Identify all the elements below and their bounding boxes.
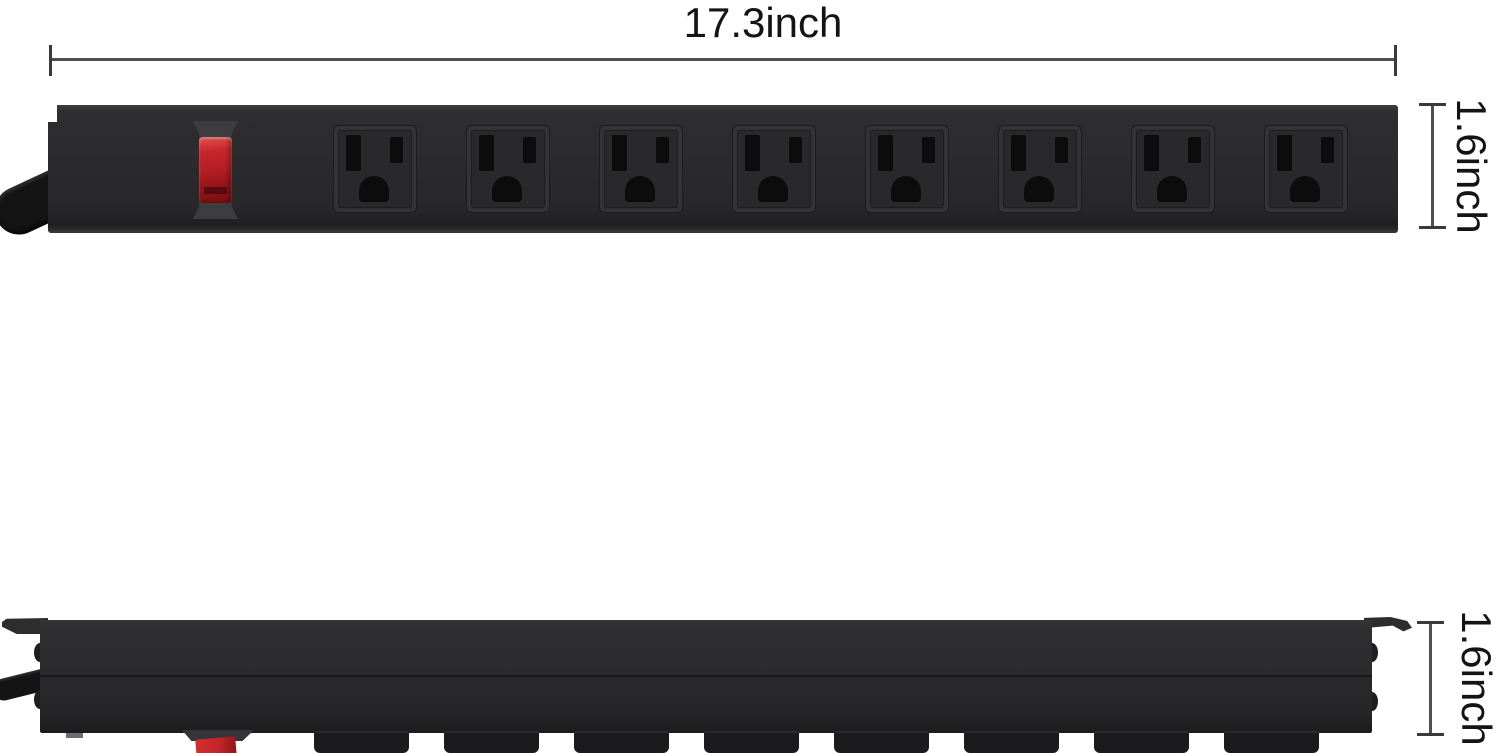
outlet-hot-slot <box>656 137 669 163</box>
side-view-height-tick-bottom <box>1417 733 1444 736</box>
outlet-neutral-slot <box>612 135 627 171</box>
side-view-height-label: 1.6inch <box>1455 610 1497 745</box>
top-view-height-label: 1.6inch <box>1450 98 1492 233</box>
housing-seam <box>40 675 1372 677</box>
outlet-ground-slot <box>758 176 788 202</box>
outlet-neutral-slot <box>1277 135 1292 171</box>
outlet-hot-slot <box>1188 137 1201 163</box>
outlet-module-underside <box>1094 731 1189 753</box>
side-view-height-tick-top <box>1417 621 1444 624</box>
outlet-neutral-slot <box>878 135 893 171</box>
outlet-neutral-slot <box>346 135 361 171</box>
power-outlet-icon <box>467 126 549 212</box>
top-view-height-line <box>1431 104 1434 228</box>
outlet-hot-slot <box>523 137 536 163</box>
switch-rocker-icon <box>199 137 232 203</box>
length-dimension-label: 17.3inch <box>684 2 843 44</box>
outlet-module-underside <box>444 731 539 753</box>
power-outlet-icon <box>733 126 815 212</box>
outlet-ground-slot <box>625 176 655 202</box>
mount-tab-row <box>314 731 1319 753</box>
outlet-ground-slot <box>492 176 522 202</box>
outlet-neutral-slot <box>1011 135 1026 171</box>
outlet-ground-slot <box>1290 176 1320 202</box>
outlet-hot-slot <box>922 137 935 163</box>
switch-rocker-side-icon <box>195 736 237 753</box>
outlet-neutral-slot <box>745 135 760 171</box>
outlet-module-underside <box>964 731 1059 753</box>
outlet-module-underside <box>574 731 669 753</box>
outlet-ground-slot <box>1157 176 1187 202</box>
power-strip-side-view <box>40 618 1372 753</box>
power-outlet-icon <box>1132 126 1214 212</box>
outlet-hot-slot <box>1055 137 1068 163</box>
outlet-ground-slot <box>891 176 921 202</box>
outlet-hot-slot <box>789 137 802 163</box>
outlet-module-underside <box>834 731 929 753</box>
length-dimension-tick-left <box>49 45 52 76</box>
power-switch <box>193 121 238 219</box>
power-outlet-icon <box>866 126 948 212</box>
outlet-neutral-slot <box>1144 135 1159 171</box>
housing-corner-notch <box>48 105 57 122</box>
outlet-module-underside <box>1224 731 1319 753</box>
top-view-height-tick-bottom <box>1419 226 1446 229</box>
outlet-ground-slot <box>359 176 389 202</box>
power-outlet-icon <box>999 126 1081 212</box>
outlet-row <box>334 126 1347 212</box>
length-dimension-tick-right <box>1394 45 1397 76</box>
power-outlet-icon <box>1265 126 1347 212</box>
outlet-module-underside <box>704 731 799 753</box>
outlet-ground-slot <box>1024 176 1054 202</box>
outlet-module-underside <box>314 731 409 753</box>
power-strip-top-view <box>48 105 1398 233</box>
outlet-hot-slot <box>1321 137 1334 163</box>
power-outlet-icon <box>600 126 682 212</box>
product-dimension-diagram: 17.3inch <box>0 0 1500 753</box>
top-view-height-tick-top <box>1419 103 1446 106</box>
length-dimension-line <box>50 58 1396 61</box>
switch-marking <box>204 187 227 194</box>
outlet-neutral-slot <box>479 135 494 171</box>
side-view-height-line <box>1429 622 1432 735</box>
power-outlet-icon <box>334 126 416 212</box>
outlet-hot-slot <box>390 137 403 163</box>
